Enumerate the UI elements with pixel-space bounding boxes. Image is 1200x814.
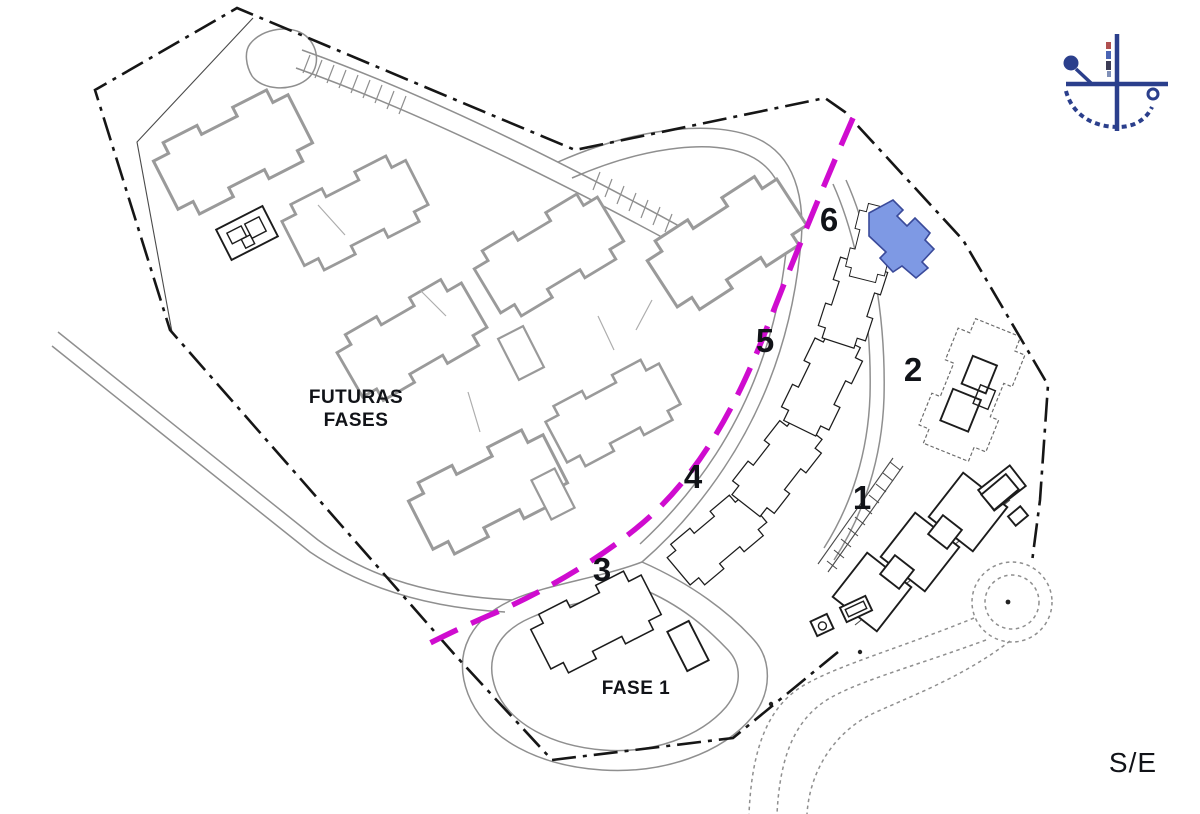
exit-road-edge <box>749 618 974 814</box>
culdesac-bulb-outer <box>972 562 1052 642</box>
culdesac-bulb-inner <box>985 575 1039 629</box>
future-phases-label-line1: FUTURAS <box>309 387 403 408</box>
turning-head-road <box>246 29 316 88</box>
future-phase-buildings <box>148 82 813 561</box>
exit-road-edge <box>777 640 986 814</box>
exit-road-edge <box>807 641 1010 814</box>
future-phases-label-line2: FASES <box>324 410 389 431</box>
future-building-outline <box>641 167 814 319</box>
future-building-outline <box>277 149 433 277</box>
block-number-6[interactable]: 6 <box>820 201 838 238</box>
block-number-4[interactable]: 4 <box>684 458 703 495</box>
future-annex-outline <box>498 326 544 380</box>
block-number-3[interactable]: 3 <box>593 551 611 588</box>
survey-dot <box>858 650 862 654</box>
survey-dot <box>1006 600 1011 605</box>
compass-knob <box>1064 56 1079 71</box>
future-building-outline <box>541 353 685 473</box>
block-number-5[interactable]: 5 <box>756 322 774 359</box>
block-number-2[interactable]: 2 <box>904 351 922 388</box>
scale-note-label: S/E <box>1109 747 1157 778</box>
entrance-road-edge <box>58 332 512 600</box>
utility-box <box>810 614 833 636</box>
phase1-label: FASE 1 <box>602 678 670 699</box>
block-number-1[interactable]: 1 <box>853 479 871 516</box>
compass-icon <box>1064 34 1169 131</box>
site-plan-drawing: 1 2 3 4 5 6 FUTURAS FASES FASE 1 S/E <box>0 0 1200 814</box>
site-plan-canvas: 1 2 3 4 5 6 FUTURAS FASES FASE 1 S/E <box>0 0 1200 814</box>
annex-outline <box>667 621 708 671</box>
small-building-outline <box>216 206 278 260</box>
compass-tiny-text <box>1106 42 1111 77</box>
